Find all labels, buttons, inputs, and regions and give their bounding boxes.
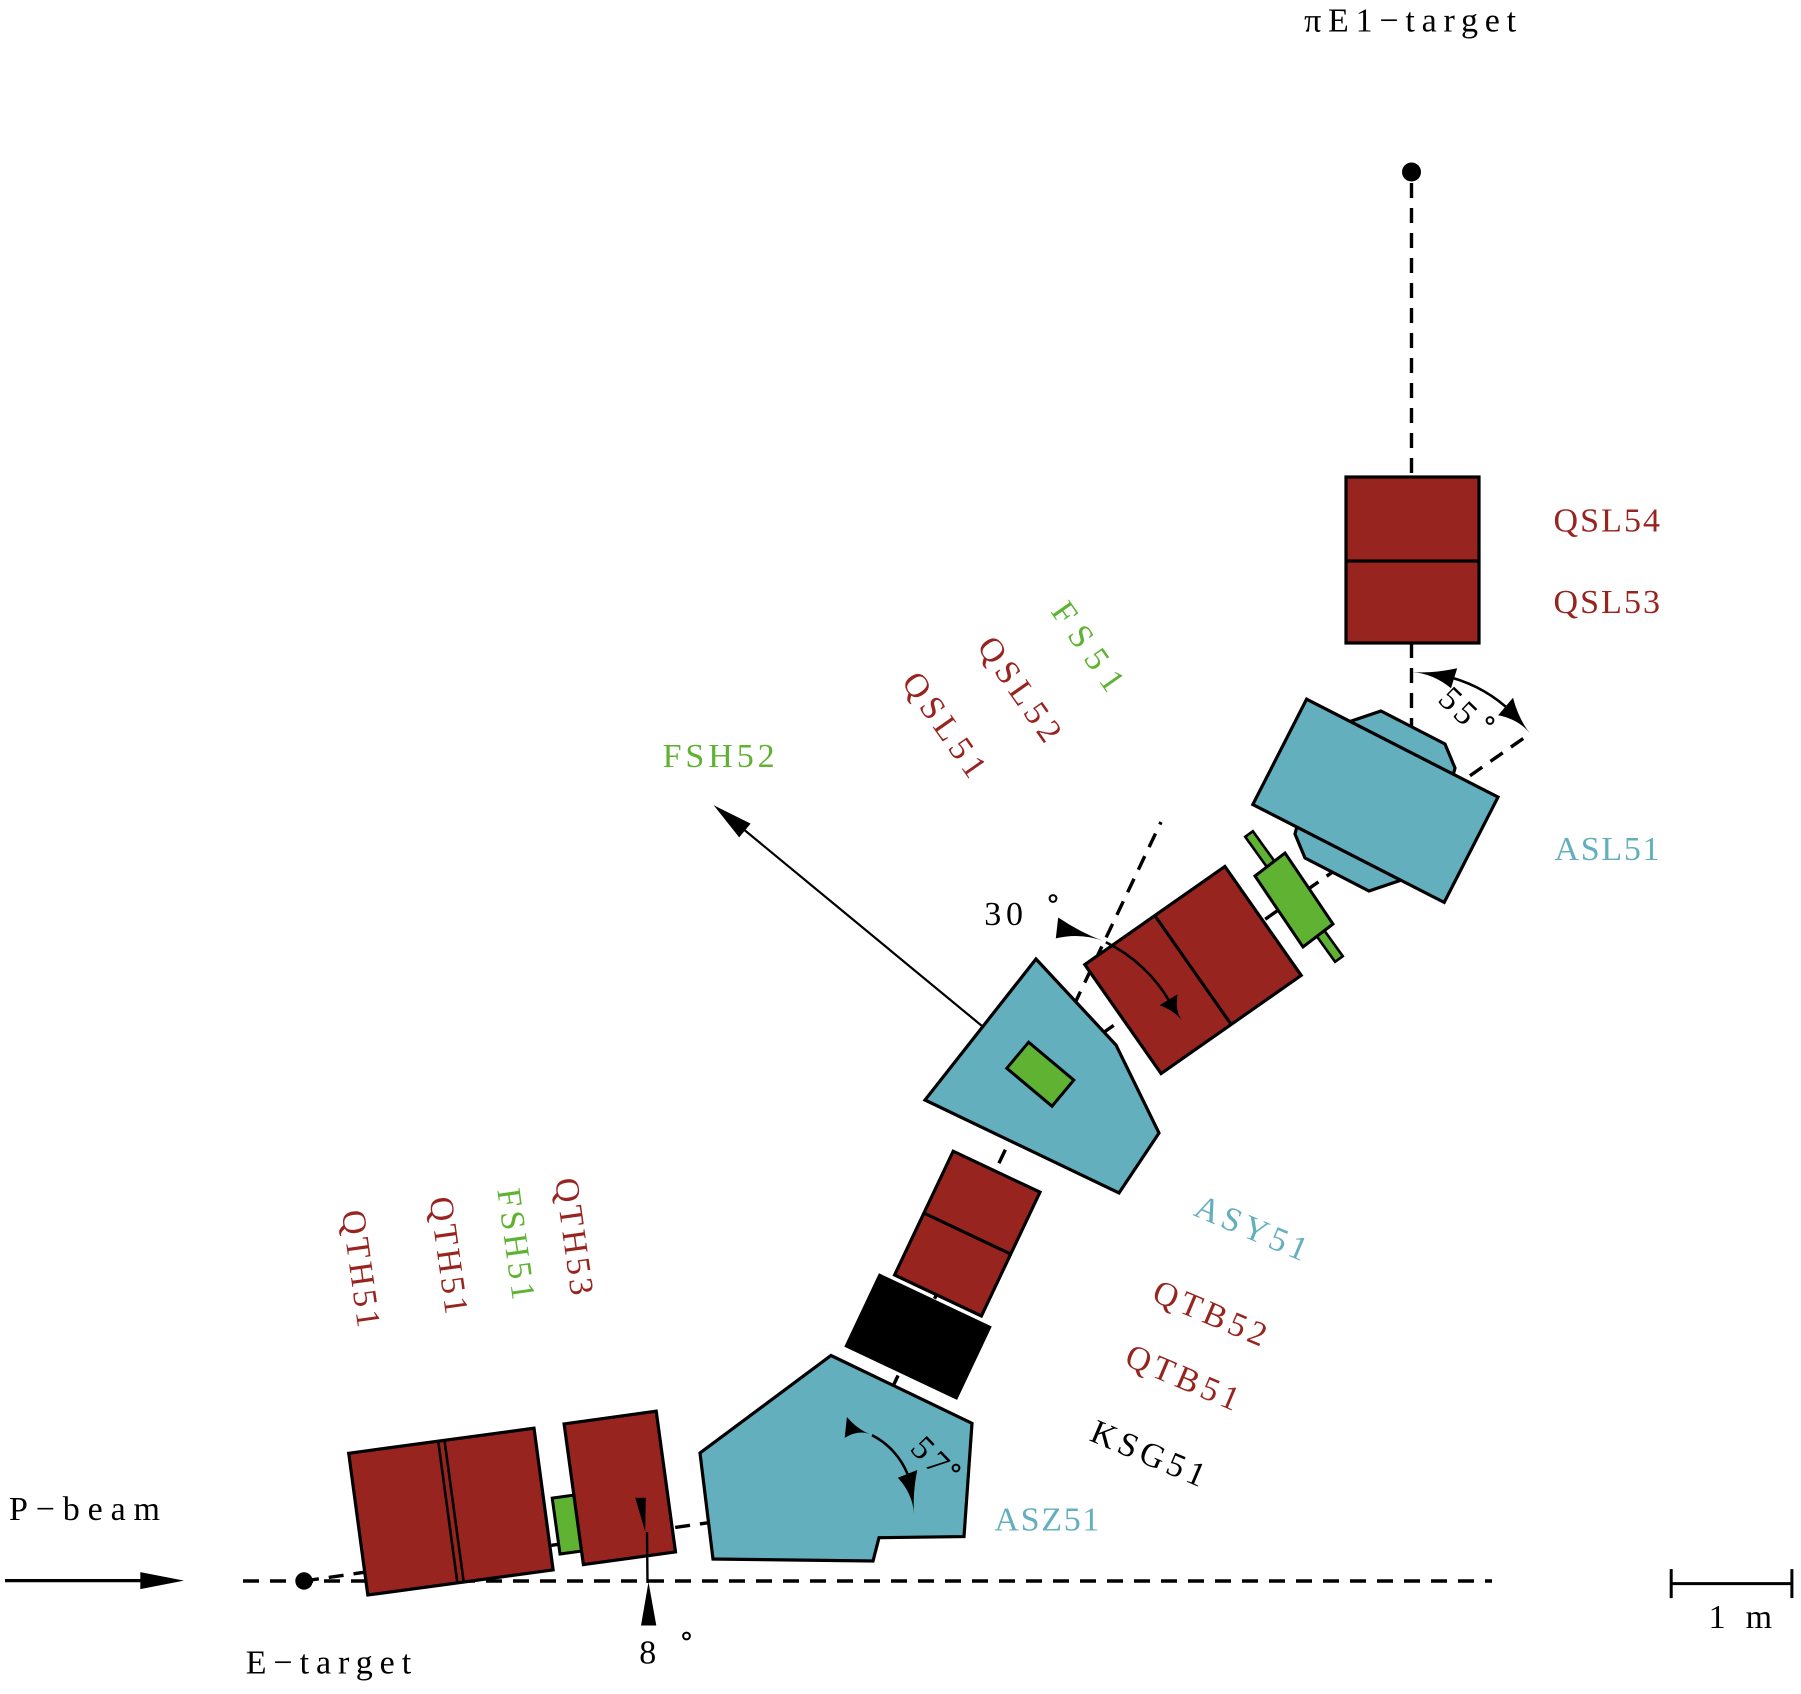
- svg-text:1 m: 1 m: [1709, 1599, 1773, 1636]
- svg-text:QSL51: QSL51: [894, 665, 993, 785]
- svg-text:FSH52: FSH52: [663, 738, 775, 775]
- svg-text:QTH53: QTH53: [547, 1175, 600, 1297]
- svg-text:ASL51: ASL51: [1555, 831, 1660, 868]
- svg-text:30: 30: [984, 896, 1023, 933]
- svg-text:πE1−target: πE1−target: [1304, 2, 1517, 39]
- svg-text:ASZ51: ASZ51: [994, 1502, 1099, 1539]
- svg-text:FSH51: FSH51: [489, 1186, 541, 1302]
- svg-text:QTH51: QTH51: [422, 1194, 475, 1316]
- svg-text:QTB51: QTB51: [1120, 1338, 1245, 1419]
- svg-text:E−target: E−target: [246, 1645, 412, 1682]
- svg-text:QSL53: QSL53: [1554, 584, 1661, 621]
- svg-text:QTB52: QTB52: [1147, 1273, 1272, 1354]
- svg-text:8: 8: [639, 1635, 656, 1672]
- svg-text:FS51: FS51: [1043, 595, 1131, 699]
- svg-text:QTH51: QTH51: [334, 1208, 387, 1330]
- svg-text:P−beam: P−beam: [9, 1491, 160, 1528]
- svg-text:QSL52: QSL52: [970, 630, 1069, 750]
- svg-text:QSL54: QSL54: [1554, 502, 1661, 539]
- svg-text:KSG51: KSG51: [1085, 1413, 1211, 1494]
- svg-text:ASY51: ASY51: [1189, 1188, 1313, 1269]
